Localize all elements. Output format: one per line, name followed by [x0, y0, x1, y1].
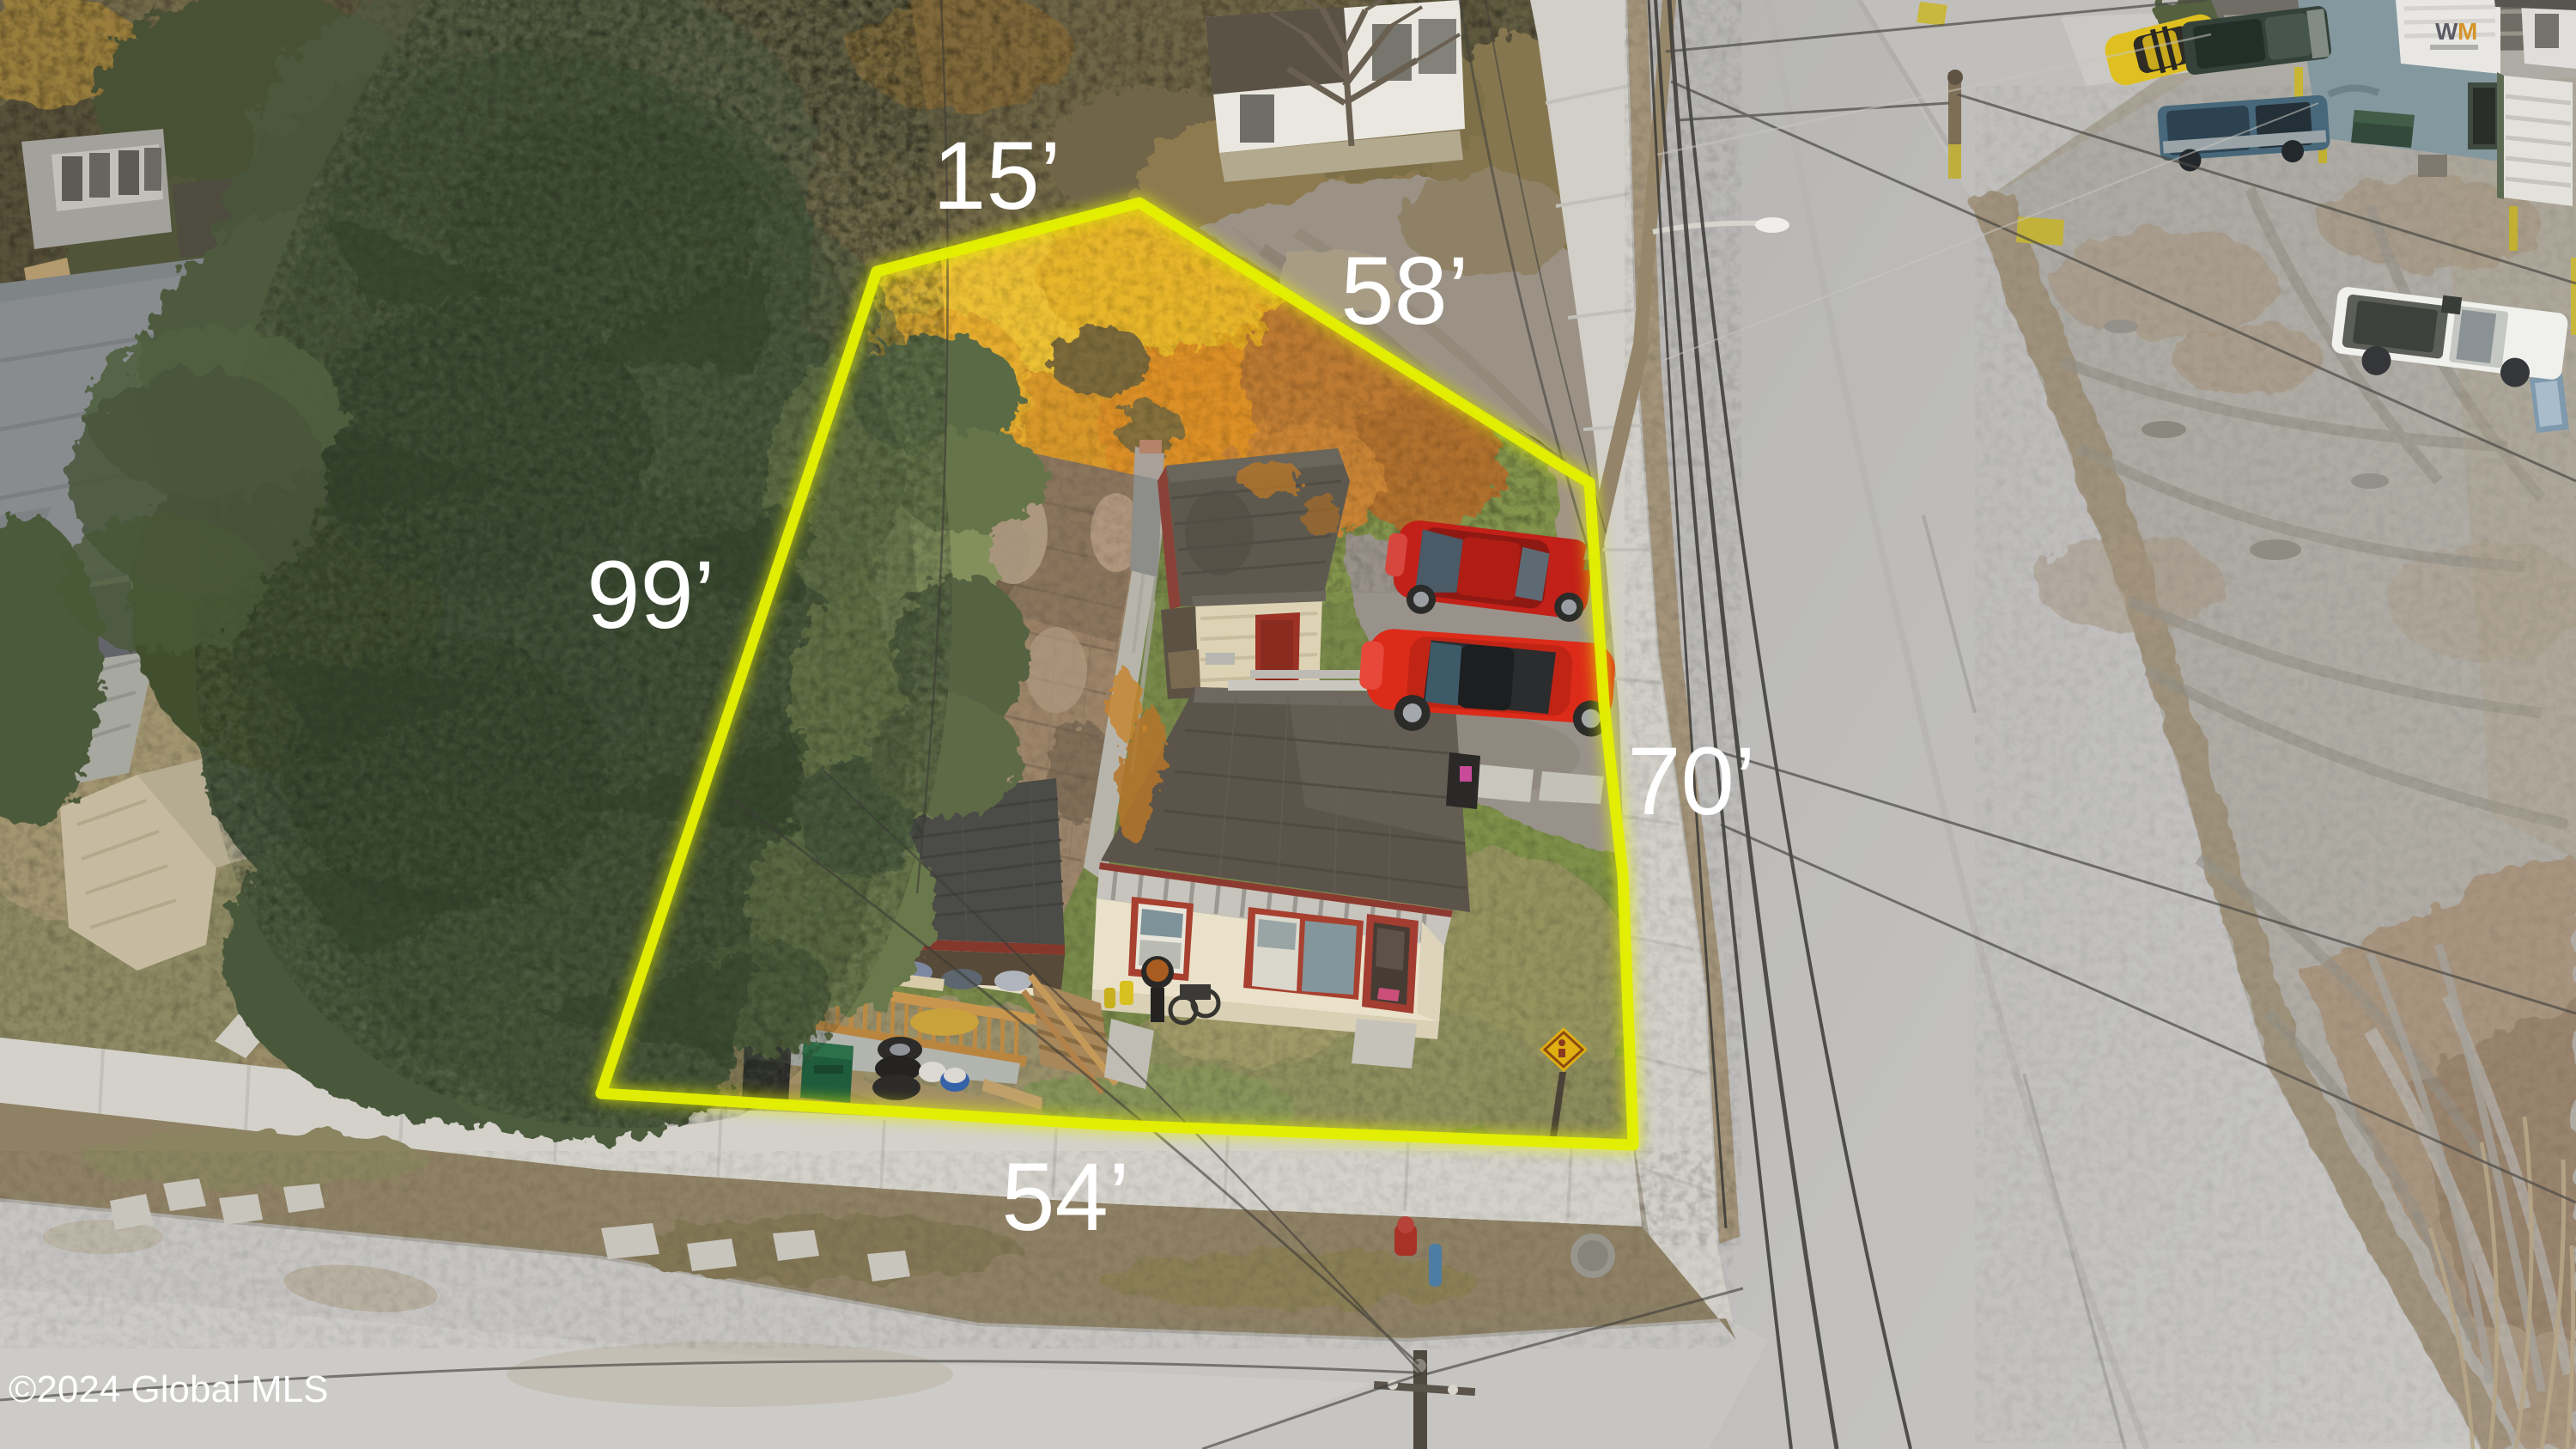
svg-text:M: M	[2458, 18, 2477, 45]
svg-text:70’: 70’	[1627, 728, 1755, 835]
svg-text:99’: 99’	[586, 541, 714, 648]
svg-text:54’: 54’	[1001, 1143, 1129, 1251]
svg-text:58’: 58’	[1340, 237, 1468, 344]
svg-text:15’: 15’	[933, 122, 1060, 229]
svg-text:©2024 Global MLS: ©2024 Global MLS	[9, 1368, 328, 1410]
svg-text:W: W	[2435, 18, 2458, 45]
